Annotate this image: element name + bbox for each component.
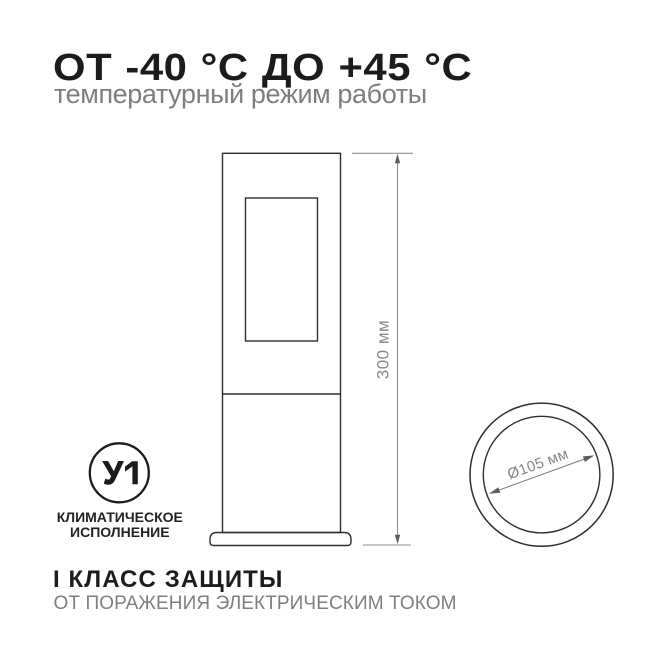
svg-text:Ø105 мм: Ø105 мм — [505, 445, 571, 483]
svg-text:300 мм: 300 мм — [374, 320, 393, 379]
svg-text:У: У — [103, 455, 124, 491]
